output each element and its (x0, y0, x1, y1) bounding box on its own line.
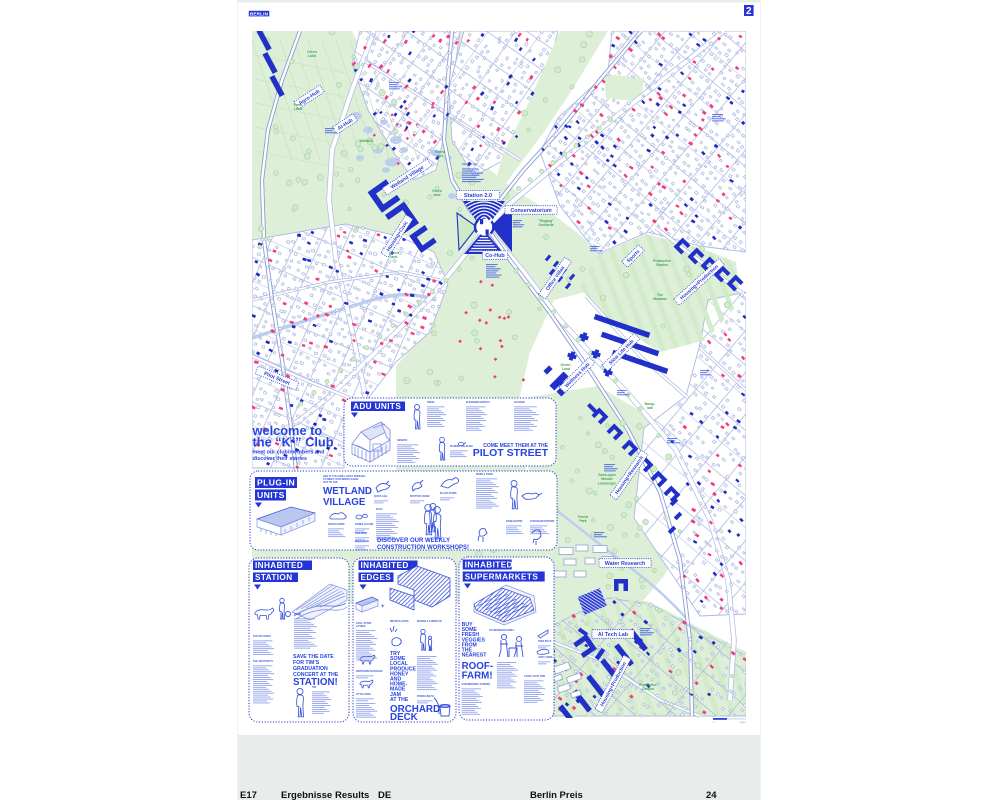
svg-text:TRES ROYS: TRES ROYS (538, 641, 552, 643)
svg-text:Orchards: Orchards (538, 223, 553, 227)
svg-text:ROCK STEIG: ROCK STEIG (355, 541, 370, 543)
svg-text:SPOTTED CRANE: SPOTTED CRANE (410, 495, 430, 498)
svg-text:TIMUR: TIMUR (427, 402, 435, 404)
svg-text:meet our club/members and: meet our club/members and (253, 450, 325, 456)
svg-text:KARL, PETER: KARL, PETER (356, 622, 372, 625)
svg-text:Water Research: Water Research (605, 561, 646, 567)
svg-text:LINDY ZONIE: LINDY ZONIE (538, 657, 553, 659)
svg-text:the “K³” Club: the “K³” Club (253, 435, 334, 450)
svg-text:Conservatorium: Conservatorium (510, 208, 552, 214)
svg-text:NORTHERN DACHSLER: NORTHERN DACHSLER (356, 670, 383, 673)
svg-text:Landscape: Landscape (598, 481, 616, 485)
svg-text:INHABITED: INHABITED (255, 561, 303, 570)
svg-text:INHABITED: INHABITED (361, 561, 409, 570)
svg-text:OMAROV: OMAROV (397, 439, 408, 442)
svg-text:Meadow: Meadow (653, 297, 667, 301)
svg-text:PILOT STREET: PILOT STREET (473, 447, 549, 459)
svg-text:BRUNO’S HOTEL: BRUNO’S HOTEL (390, 621, 410, 623)
svg-text:ZUCKERMANN FAMILY: ZUCKERMANN FAMILY (489, 629, 515, 632)
svg-text:BLINDED FIELDLING: BLINDED FIELDLING (450, 446, 473, 448)
svg-text:land: land (391, 255, 398, 259)
svg-text:MORE & TIGER: MORE & TIGER (476, 474, 493, 476)
svg-text:WETLAND: WETLAND (323, 486, 372, 497)
svg-text:Land: Land (562, 367, 570, 371)
svg-text:CONSTRUCTION WORKSHOPS!: CONSTRUCTION WORKSHOPS! (377, 545, 469, 551)
svg-text:POND ELDERS: POND ELDERS (328, 524, 345, 526)
svg-text:Ergebnisse: Ergebnisse (281, 790, 332, 800)
svg-text:SUPERMARKET STORIES: SUPERMARKET STORIES (462, 683, 491, 686)
svg-text:Co-Hub: Co-Hub (485, 253, 505, 259)
svg-text:PLUG-IN: PLUG-IN (257, 478, 295, 488)
svg-text:E17: E17 (240, 790, 257, 800)
svg-text:LITTLE HEIDI: LITTLE HEIDI (356, 694, 371, 696)
svg-text:OUT IN THE: OUT IN THE (323, 480, 338, 484)
svg-text:SUPERMARKETS: SUPERMARKETS (465, 572, 539, 581)
svg-text:TINA PONY: TINA PONY (355, 532, 368, 535)
svg-text:STATION: STATION (255, 573, 293, 582)
svg-text:500m: 500m (740, 722, 746, 724)
svg-text:discover their stories: discover their stories (253, 456, 308, 462)
svg-text:Berlin Preis: Berlin Preis (530, 790, 583, 800)
svg-text:Results: Results (335, 790, 369, 800)
svg-text:DAMES LELAND: DAMES LELAND (355, 523, 374, 526)
svg-text:+: + (381, 604, 385, 610)
svg-text:UNITS: UNITS (257, 490, 285, 500)
svg-text:INHABITED: INHABITED (465, 560, 513, 569)
svg-text:ADU UNITS: ADU UNITS (353, 402, 401, 411)
svg-text:BERLIN: BERLIN (250, 11, 269, 16)
svg-text:CURASSOW BITTERN: CURASSOW BITTERN (530, 520, 555, 523)
svg-text:QUICK GAIL: QUICK GAIL (374, 495, 388, 498)
svg-text:THE PET-SANTA: THE PET-SANTA (253, 635, 271, 638)
svg-text:Station 2.0: Station 2.0 (464, 193, 492, 199)
svg-text:AT THE: AT THE (390, 697, 409, 703)
svg-text:EDGES: EDGES (361, 573, 392, 582)
svg-text:24: 24 (706, 790, 717, 800)
svg-text:DAME MARTIN: DAME MARTIN (506, 520, 523, 523)
svg-text:NEAREST: NEAREST (462, 653, 488, 659)
svg-text:Land: Land (294, 107, 302, 111)
svg-text:CAROL-TOVA TOBI: CAROL-TOVA TOBI (524, 675, 545, 678)
svg-text:2: 2 (746, 6, 752, 17)
svg-text:DISCOVER OUR WEEKLY: DISCOVER OUR WEEKLY (377, 538, 450, 544)
svg-text:Land: Land (308, 54, 316, 58)
svg-text:TIM: TIM (312, 687, 316, 689)
svg-text:AI Tech Lab: AI Tech Lab (598, 632, 629, 638)
svg-text:& PHILIP: & PHILIP (356, 626, 366, 628)
svg-text:Garden: Garden (656, 263, 668, 267)
svg-text:DE: DE (378, 790, 391, 800)
svg-text:ELEONORE MARCUS: ELEONORE MARCUS (466, 401, 490, 404)
svg-text:THE ARCHITECTS: THE ARCHITECTS (253, 660, 273, 663)
svg-text:DECK: DECK (390, 712, 418, 723)
svg-text:JOACHIM: JOACHIM (514, 401, 525, 404)
svg-text:land: land (434, 193, 441, 197)
svg-text:Wetland: Wetland (359, 139, 372, 143)
svg-text:FELIX: FELIX (376, 509, 383, 511)
svg-text:park: park (436, 154, 443, 158)
svg-text:ball: ball (647, 406, 653, 410)
svg-text:The Canopy: The Canopy (462, 162, 477, 166)
svg-text:FARM!: FARM! (462, 671, 493, 682)
svg-text:CHRIS: CHRIS (294, 614, 302, 616)
svg-text:Garden: Garden (642, 687, 654, 691)
svg-text:PONDULINE 50: PONDULINE 50 (417, 696, 434, 698)
svg-text:MARINA & CHRISTIAN: MARINA & CHRISTIAN (417, 620, 442, 623)
svg-text:Park: Park (579, 519, 586, 523)
svg-text:BLACK STORK: BLACK STORK (440, 492, 457, 495)
svg-text:VILLAGE: VILLAGE (323, 497, 366, 508)
